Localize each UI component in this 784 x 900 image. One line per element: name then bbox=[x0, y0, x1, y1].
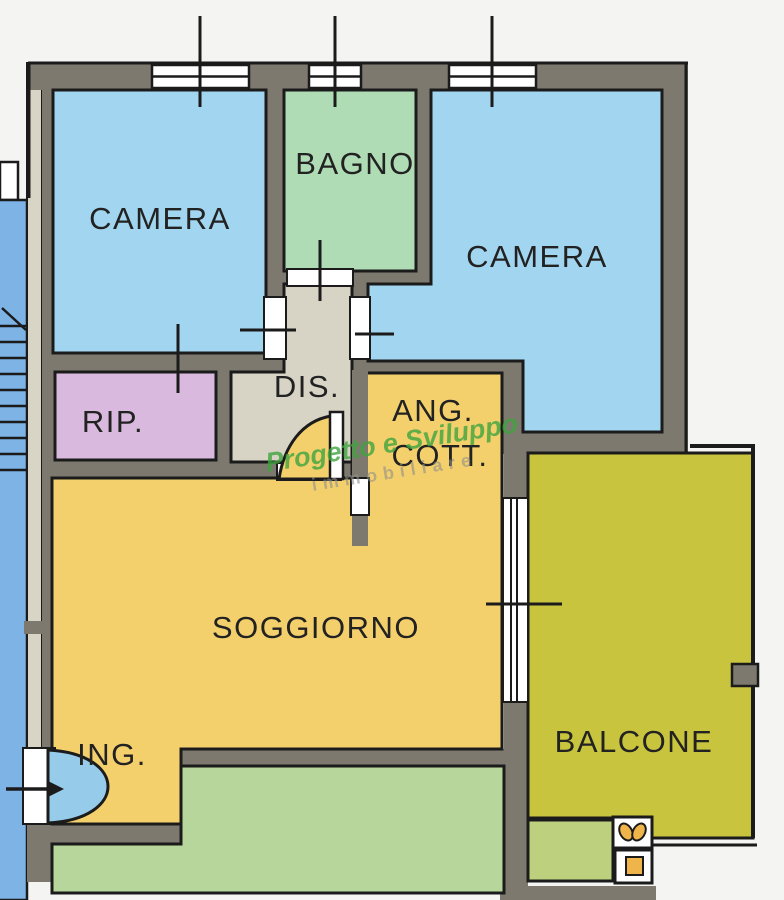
label-balcone: BALCONE bbox=[555, 724, 714, 759]
parapet-block bbox=[732, 664, 758, 686]
wall-camera2-bottom bbox=[504, 432, 688, 454]
label-rip: RIP. bbox=[82, 404, 144, 439]
wall-right bbox=[662, 62, 688, 454]
label-dis: DIS. bbox=[274, 369, 340, 404]
label-bagno: BAGNO bbox=[295, 146, 414, 181]
landing-box bbox=[0, 162, 18, 200]
shaft-square bbox=[626, 857, 643, 875]
windows-top bbox=[152, 65, 536, 88]
wall-camera1-bottom bbox=[42, 352, 284, 372]
wall-soggiorno-bottom bbox=[162, 749, 528, 766]
wall-bottom-band bbox=[500, 886, 656, 900]
door-camera-right bbox=[350, 297, 370, 359]
wall-left-lower bbox=[27, 824, 54, 882]
wall-bagno-right bbox=[416, 90, 431, 284]
door-camera-left bbox=[264, 297, 286, 359]
label-camera-right: CAMERA bbox=[466, 239, 608, 274]
wall-pillar-left bbox=[24, 621, 42, 634]
room-balcone bbox=[528, 453, 753, 838]
wall-angcott-top bbox=[364, 361, 513, 373]
label-camera-left: CAMERA bbox=[89, 201, 231, 236]
label-ing: ING. bbox=[77, 737, 147, 772]
floor-plan-image: CAMERA BAGNO CAMERA RIP. DIS. ANG. COTT.… bbox=[0, 0, 784, 900]
balcone-lower-strip bbox=[528, 820, 613, 881]
wall-ing-bottom bbox=[42, 824, 181, 844]
label-soggiorno: SOGGIORNO bbox=[212, 610, 420, 645]
window-balcone bbox=[503, 498, 528, 702]
